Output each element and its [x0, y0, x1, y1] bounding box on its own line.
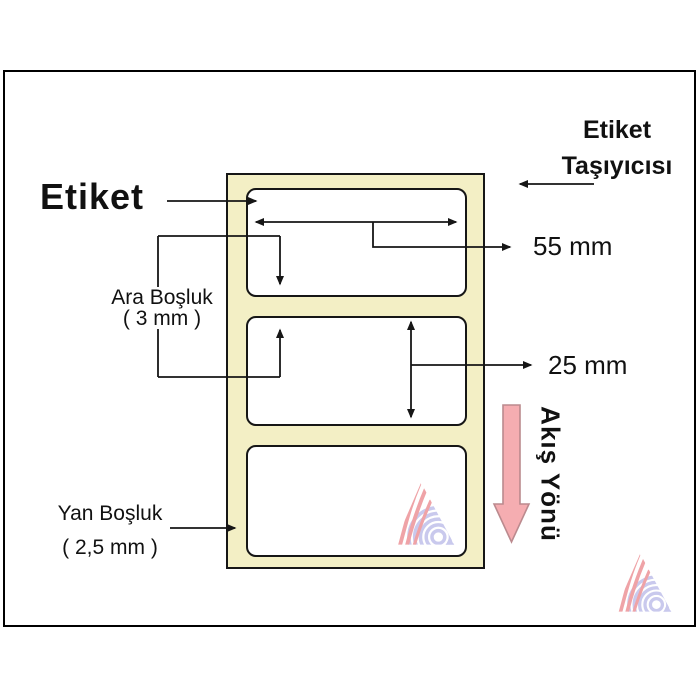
- gap-label-line2: ( 3 mm ): [99, 308, 225, 329]
- carrier-label-line2: Taşıyıcısı: [532, 148, 700, 184]
- side-margin-label-line2: ( 2,5 mm ): [35, 531, 185, 565]
- blank-label-2: [246, 316, 467, 426]
- watermark-logo-icon: [611, 553, 673, 613]
- side-margin-label-line1: Yan Boşluk: [35, 497, 185, 531]
- watermark-logo-icon: [390, 482, 456, 546]
- height-dimension-value: 25 mm: [548, 352, 627, 378]
- blank-label-1: [246, 188, 467, 297]
- gap-label-line1: Ara Boşluk: [99, 287, 225, 308]
- etiket-heading: Etiket: [40, 179, 144, 215]
- flow-direction-label: Akış Yönü: [535, 406, 566, 542]
- carrier-label: Etiket Taşıyıcısı: [532, 112, 700, 184]
- width-dimension-value: 55 mm: [533, 233, 612, 259]
- side-margin-label: Yan Boşluk ( 2,5 mm ): [35, 497, 185, 565]
- carrier-label-line1: Etiket: [532, 112, 700, 148]
- label-spec-diagram: Etiket Etiket Taşıyıcısı 55 mm 25 mm Ara…: [0, 0, 700, 700]
- gap-label: Ara Boşluk ( 3 mm ): [99, 287, 225, 329]
